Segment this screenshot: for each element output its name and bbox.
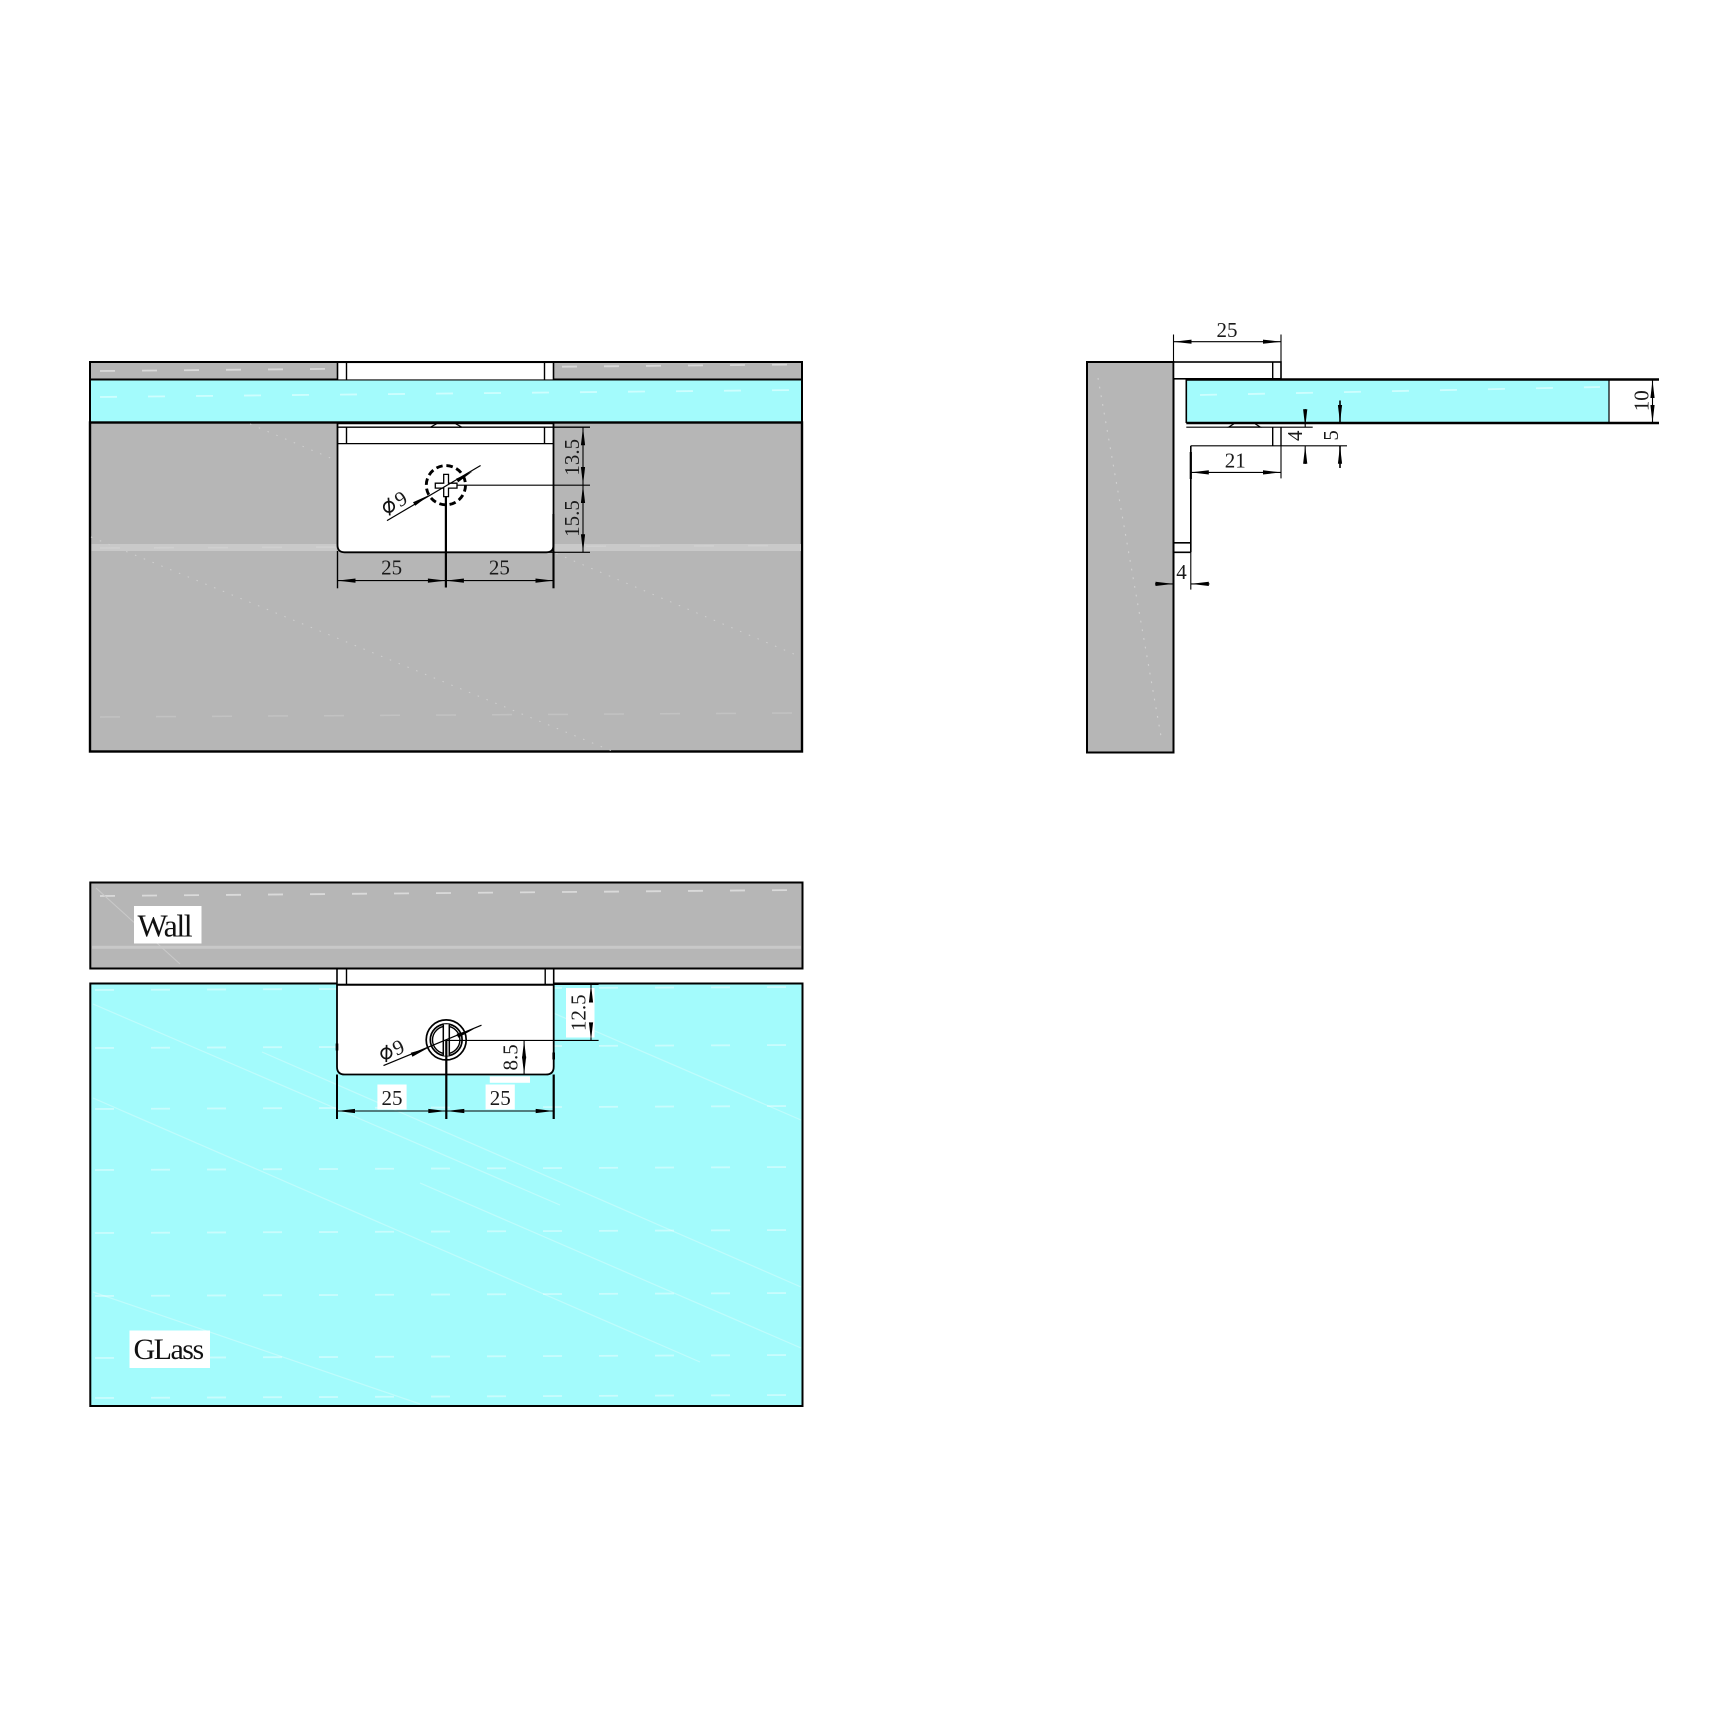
svg-text:GLass: GLass (134, 1333, 204, 1366)
svg-text:10: 10 (1630, 390, 1654, 411)
svg-text:Wall: Wall (138, 908, 193, 944)
svg-text:5: 5 (1319, 430, 1343, 441)
svg-text:13.5: 13.5 (560, 439, 584, 476)
svg-text:8.5: 8.5 (499, 1044, 523, 1070)
svg-text:4: 4 (1283, 430, 1307, 441)
svg-text:25: 25 (1217, 318, 1238, 342)
svg-text:21: 21 (1225, 448, 1246, 472)
svg-text:4: 4 (1176, 560, 1187, 584)
svg-text:25: 25 (381, 556, 402, 580)
svg-text:12.5: 12.5 (567, 994, 591, 1031)
svg-text:25: 25 (489, 556, 510, 580)
svg-text:25: 25 (490, 1086, 511, 1110)
svg-text:25: 25 (382, 1086, 403, 1110)
svg-text:15.5: 15.5 (560, 500, 584, 537)
